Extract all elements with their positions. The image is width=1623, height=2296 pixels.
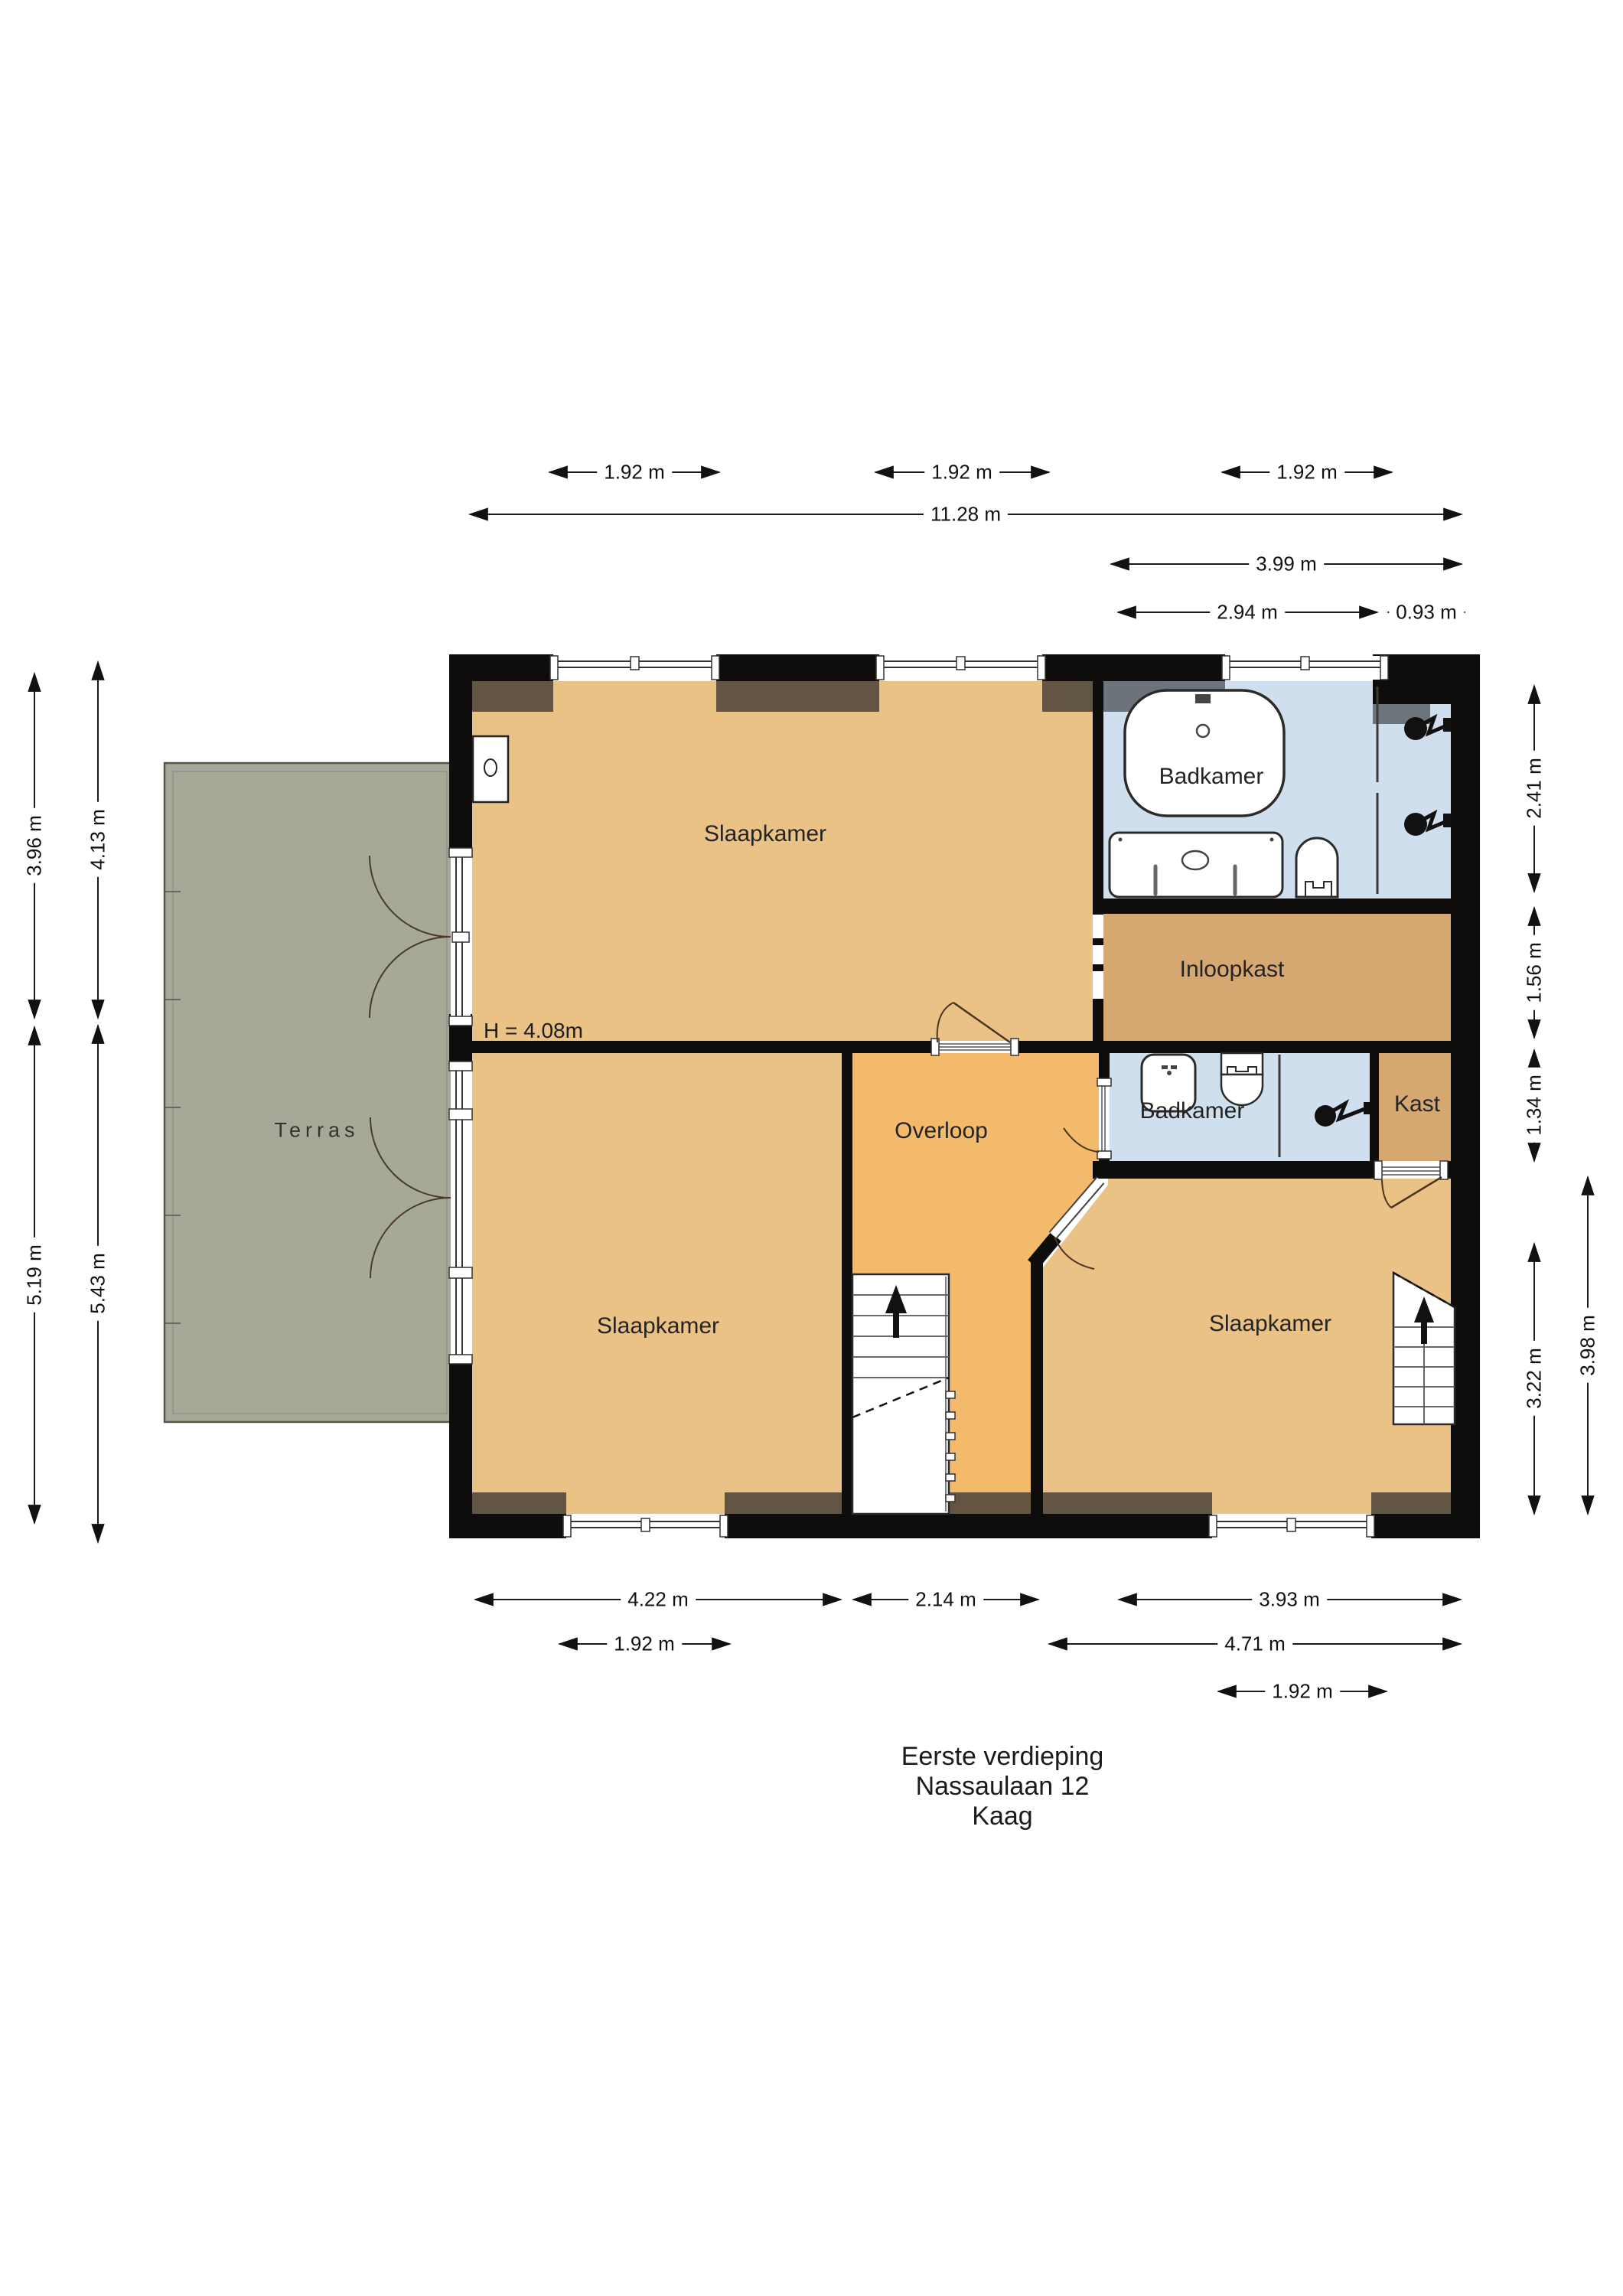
bathtub — [1125, 690, 1284, 816]
dim-label: 1.56 m — [1523, 935, 1546, 1010]
dim-label: 3.98 m — [1576, 1308, 1600, 1383]
dim-label: 3.22 m — [1523, 1341, 1546, 1416]
bedroom-sink-unit — [473, 736, 508, 802]
room-floors — [472, 681, 1451, 1514]
room-slaapkamer-right-floor — [1043, 1179, 1451, 1514]
toilet — [1221, 1053, 1263, 1105]
window — [563, 1515, 728, 1537]
dim-label: 3.96 m — [23, 808, 47, 883]
dim-label: 4.22 m — [621, 1588, 696, 1612]
window — [550, 656, 719, 680]
dim-label: 4.71 m — [1217, 1632, 1292, 1656]
dim-label: 2.14 m — [908, 1588, 983, 1612]
room-label-inloopkast: Inloopkast — [1180, 957, 1285, 983]
room-slaapkamer-left-floor — [472, 1053, 842, 1514]
title-street: Nassaulaan 12 — [773, 1772, 1232, 1802]
dim-label: 2.94 m — [1210, 601, 1285, 625]
room-label-badkamer-main: Badkamer — [1159, 764, 1264, 790]
dim-label: 11.28 m — [924, 503, 1008, 527]
dim-label: 4.13 m — [86, 802, 110, 877]
dim-label: 2.41 m — [1523, 751, 1546, 826]
dim-label: 1.92 m — [1269, 461, 1344, 484]
dim-label: 1.92 m — [597, 461, 672, 484]
top-windows — [550, 656, 1388, 680]
window — [1222, 656, 1388, 680]
left-wall-glazing — [449, 848, 472, 1364]
dim-label: 1.34 m — [1523, 1068, 1546, 1143]
floor-plan-drawing — [0, 0, 1623, 2296]
dim-label: 1.92 m — [1265, 1680, 1340, 1704]
room-label-slaapkamer-top: Slaapkamer — [704, 821, 826, 847]
dim-label: 5.19 m — [23, 1238, 47, 1313]
room-label-overloop: Overloop — [895, 1118, 988, 1144]
window — [876, 656, 1045, 680]
dim-label: 3.99 m — [1249, 553, 1324, 576]
room-label-terras: Terras — [274, 1119, 359, 1143]
room-label-slaapkamer-right: Slaapkamer — [1209, 1311, 1331, 1337]
dim-label: 0.93 m — [1389, 601, 1464, 625]
dim-label: 1.92 m — [607, 1632, 682, 1656]
wall-opening-dashed — [1093, 915, 1103, 999]
room-label-badkamer-small: Badkamer — [1140, 1098, 1245, 1124]
window — [1209, 1515, 1374, 1537]
title-floor: Eerste verdieping — [773, 1742, 1232, 1772]
title-block: Eerste verdieping Nassaulaan 12 Kaag — [773, 1742, 1232, 1831]
floor-plan-page: Slaapkamer Badkamer Inloopkast Badkamer … — [0, 0, 1623, 2296]
main-staircase — [852, 1274, 955, 1514]
dim-label: 3.93 m — [1252, 1588, 1327, 1612]
terrace-area — [165, 763, 455, 1422]
room-label-kast: Kast — [1394, 1091, 1440, 1117]
room-slaapkamer-top-floor — [472, 681, 1093, 1041]
room-label-slaapkamer-left: Slaapkamer — [597, 1313, 719, 1339]
ceiling-height-note: H = 4.08m — [484, 1019, 583, 1043]
title-city: Kaag — [773, 1802, 1232, 1831]
dim-label: 5.43 m — [86, 1246, 110, 1321]
dim-label: 1.92 m — [924, 461, 999, 484]
